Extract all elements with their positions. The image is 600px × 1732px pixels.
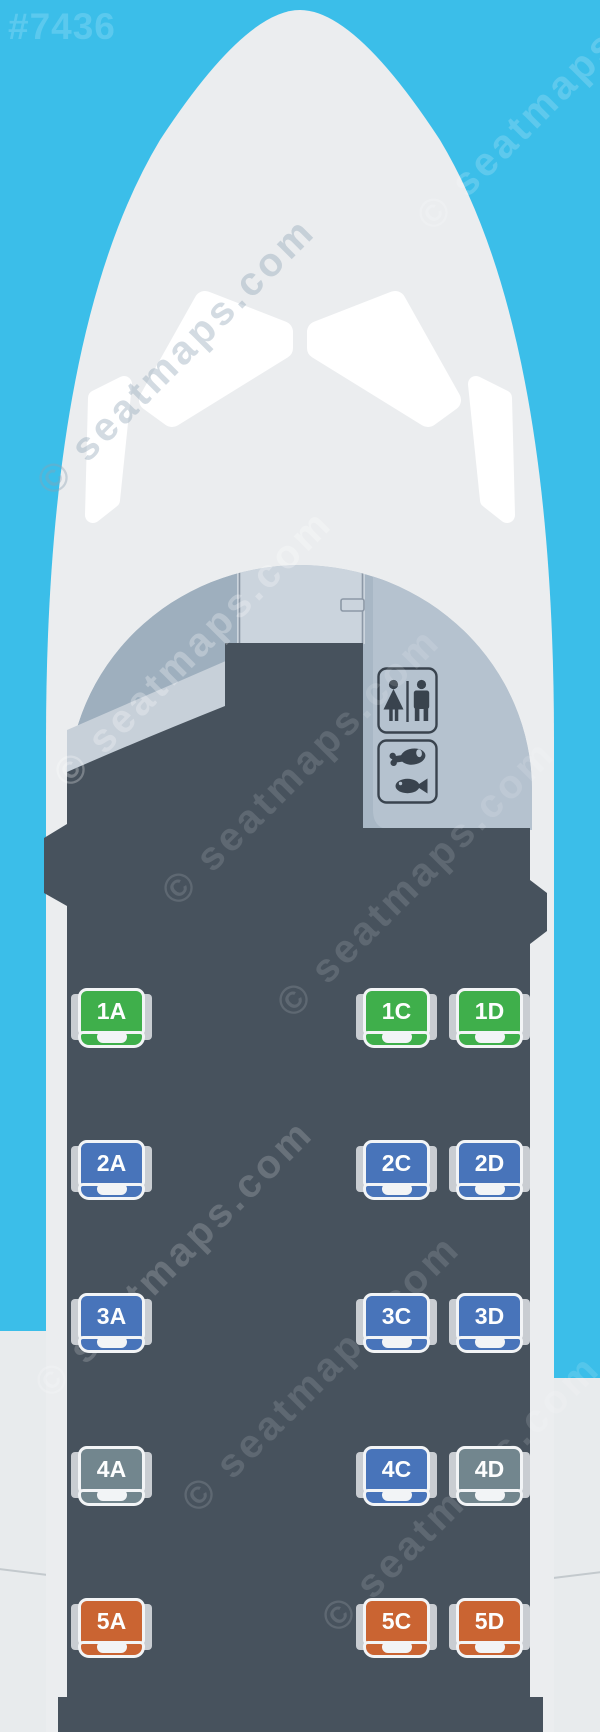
seat-label: 2A bbox=[78, 1140, 145, 1187]
seat-cushion bbox=[456, 1031, 523, 1048]
seat-label: 1C bbox=[363, 988, 430, 1035]
seat-5D[interactable]: 5D bbox=[449, 1598, 530, 1658]
seat-pad bbox=[475, 1336, 505, 1348]
seat-cushion bbox=[456, 1183, 523, 1200]
door-handle-icon bbox=[341, 599, 364, 611]
seat-label: 5D bbox=[456, 1598, 523, 1645]
seat-label: 2C bbox=[363, 1140, 430, 1187]
seat-pad bbox=[475, 1489, 505, 1501]
seat-2A[interactable]: 2A bbox=[71, 1140, 152, 1200]
seat-label: 5A bbox=[78, 1598, 145, 1645]
seat-cushion bbox=[78, 1336, 145, 1353]
seat-pad bbox=[382, 1183, 412, 1195]
seat-pad bbox=[475, 1183, 505, 1195]
seat-label: 5C bbox=[363, 1598, 430, 1645]
seat-label: 3D bbox=[456, 1293, 523, 1340]
map-id-label: #7436 bbox=[8, 6, 116, 48]
seat-pad bbox=[97, 1641, 127, 1653]
seat-pad bbox=[97, 1183, 127, 1195]
seat-1D[interactable]: 1D bbox=[449, 988, 530, 1048]
seat-cushion bbox=[363, 1641, 430, 1658]
seat-cushion bbox=[456, 1489, 523, 1506]
seat-cushion bbox=[78, 1641, 145, 1658]
seat-cushion bbox=[456, 1336, 523, 1353]
seat-cushion bbox=[78, 1183, 145, 1200]
seat-pad bbox=[97, 1489, 127, 1501]
seat-pad bbox=[382, 1489, 412, 1501]
seat-3A[interactable]: 3A bbox=[71, 1293, 152, 1353]
seat-label: 4D bbox=[456, 1446, 523, 1493]
seat-label: 1D bbox=[456, 988, 523, 1035]
seat-cushion bbox=[363, 1183, 430, 1200]
seat-cushion bbox=[456, 1641, 523, 1658]
seat-cushion bbox=[363, 1336, 430, 1353]
cockpit-door bbox=[237, 563, 365, 644]
seat-4D[interactable]: 4D bbox=[449, 1446, 530, 1506]
seat-cushion bbox=[363, 1489, 430, 1506]
seat-pad bbox=[382, 1641, 412, 1653]
seat-1C[interactable]: 1C bbox=[356, 988, 437, 1048]
seat-4A[interactable]: 4A bbox=[71, 1446, 152, 1506]
seat-cushion bbox=[78, 1489, 145, 1506]
cockpit-side-window-left bbox=[93, 384, 124, 515]
seat-label: 3A bbox=[78, 1293, 145, 1340]
seat-map-canvas: #7436 © seatmaps.com © seatmaps.com © se… bbox=[0, 0, 600, 1732]
seat-1A[interactable]: 1A bbox=[71, 988, 152, 1048]
seat-pad bbox=[475, 1031, 505, 1043]
seat-pad bbox=[382, 1336, 412, 1348]
seat-cushion bbox=[78, 1031, 145, 1048]
seat-2C[interactable]: 2C bbox=[356, 1140, 437, 1200]
seat-pad bbox=[382, 1031, 412, 1043]
seat-5A[interactable]: 5A bbox=[71, 1598, 152, 1658]
seat-pad bbox=[97, 1031, 127, 1043]
seat-pad bbox=[97, 1336, 127, 1348]
seat-3C[interactable]: 3C bbox=[356, 1293, 437, 1353]
seat-label: 4C bbox=[363, 1446, 430, 1493]
seat-label: 4A bbox=[78, 1446, 145, 1493]
seat-cushion bbox=[363, 1031, 430, 1048]
cockpit-side-window-right bbox=[476, 384, 507, 515]
seat-3D[interactable]: 3D bbox=[449, 1293, 530, 1353]
seat-2D[interactable]: 2D bbox=[449, 1140, 530, 1200]
seat-label: 1A bbox=[78, 988, 145, 1035]
seat-4C[interactable]: 4C bbox=[356, 1446, 437, 1506]
seat-label: 2D bbox=[456, 1140, 523, 1187]
seat-5C[interactable]: 5C bbox=[356, 1598, 437, 1658]
seat-pad bbox=[475, 1641, 505, 1653]
seat-label: 3C bbox=[363, 1293, 430, 1340]
